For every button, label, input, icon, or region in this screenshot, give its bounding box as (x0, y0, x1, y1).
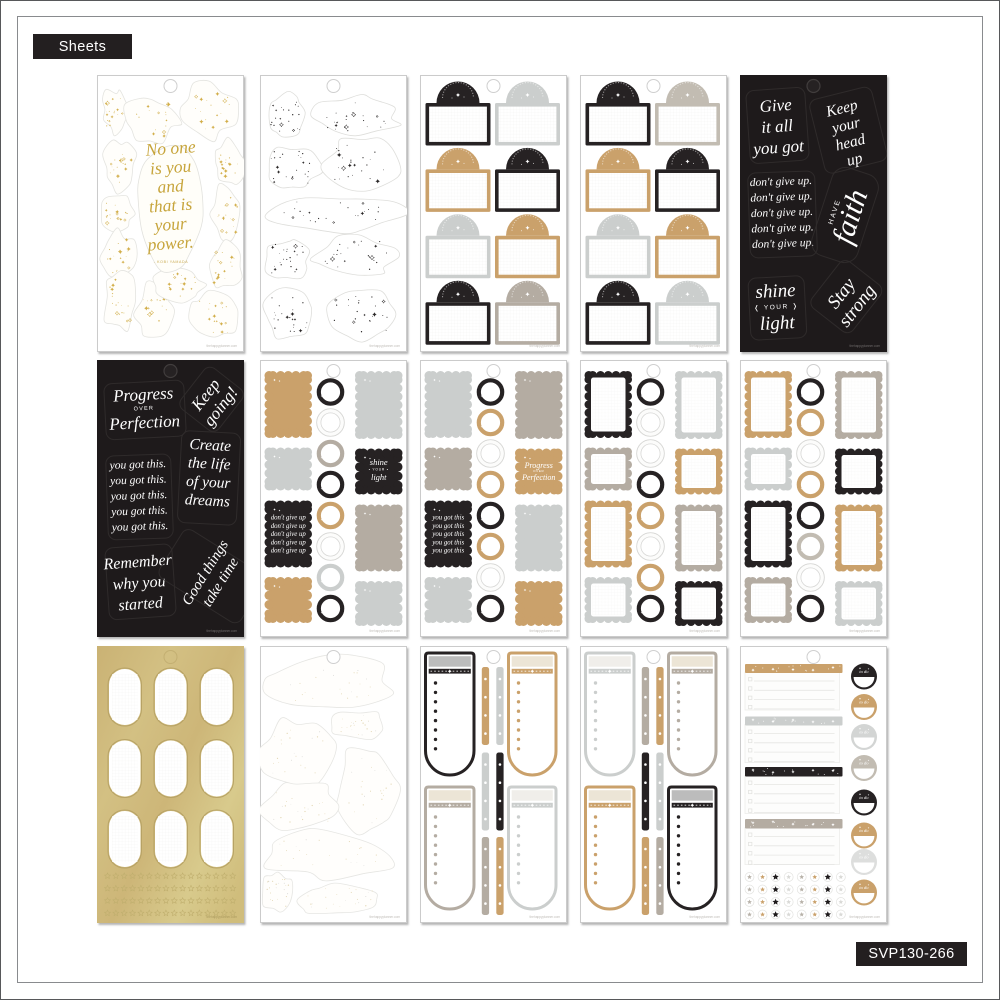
svg-text:don't give up: don't give up (271, 523, 307, 530)
svg-text:thehappyplanner.com: thehappyplanner.com (690, 629, 721, 633)
svg-text:of your: of your (186, 473, 232, 492)
svg-text:thehappyplanner.com: thehappyplanner.com (207, 344, 238, 348)
svg-text:you got this: you got this (431, 523, 464, 530)
svg-text:thehappyplanner.com: thehappyplanner.com (370, 915, 401, 919)
svg-text:thehappyplanner.com: thehappyplanner.com (850, 344, 881, 348)
svg-text:started: started (118, 594, 165, 614)
svg-text:shine: shine (370, 457, 388, 467)
svg-text:power.: power. (145, 231, 194, 254)
svg-text:to do: to do (859, 828, 869, 833)
svg-text:to do: to do (859, 700, 869, 705)
svg-text:thehappyplanner.com: thehappyplanner.com (530, 344, 561, 348)
svg-text:you got this: you got this (431, 531, 464, 538)
svg-text:don't give up.: don't give up. (752, 237, 815, 251)
svg-text:thehappyplanner.com: thehappyplanner.com (530, 629, 561, 633)
svg-text:you got this.: you got this. (108, 458, 166, 472)
svg-text:to do: to do (859, 761, 869, 766)
svg-text:don't give up: don't give up (271, 548, 307, 555)
svg-text:don't give up.: don't give up. (751, 206, 814, 220)
svg-text:you got this.: you got this. (110, 489, 168, 503)
svg-text:to do: to do (859, 730, 869, 735)
svg-text:Perfection: Perfection (108, 411, 181, 434)
svg-text:to do: to do (859, 795, 869, 800)
svg-text:don't give up.: don't give up. (750, 175, 813, 189)
svg-text:thehappyplanner.com: thehappyplanner.com (530, 915, 561, 919)
svg-text:thehappyplanner.com: thehappyplanner.com (690, 915, 721, 919)
svg-text:• YOUR •: • YOUR • (369, 468, 389, 472)
svg-text:Progress: Progress (112, 383, 174, 405)
svg-text:Create: Create (189, 436, 232, 455)
svg-text:you got: you got (751, 136, 806, 159)
svg-text:to do: to do (859, 855, 869, 860)
svg-text:to do: to do (859, 669, 869, 674)
svg-text:thehappyplanner.com: thehappyplanner.com (370, 344, 401, 348)
svg-text:light: light (371, 472, 387, 482)
svg-text:don't give up.: don't give up. (751, 221, 814, 235)
svg-text:Perfection: Perfection (521, 473, 555, 482)
svg-text:thehappyplanner.com: thehappyplanner.com (850, 629, 881, 633)
svg-text:thehappyplanner.com: thehappyplanner.com (850, 915, 881, 919)
svg-text:you got this.: you got this. (110, 504, 168, 518)
svg-text:you got this: you got this (431, 548, 464, 555)
svg-text:don't give up: don't give up (271, 539, 307, 546)
svg-text:you got this.: you got this. (109, 474, 167, 488)
svg-text:thehappyplanner.com: thehappyplanner.com (690, 344, 721, 348)
svg-text:you got this: you got this (431, 539, 464, 546)
svg-text:you got this: you got this (431, 515, 464, 522)
svg-text:the life: the life (188, 454, 232, 473)
svg-text:- KOBI YAMADA: - KOBI YAMADA (154, 260, 188, 264)
svg-text:thehappyplanner.com: thehappyplanner.com (370, 629, 401, 633)
svg-text:to do: to do (859, 885, 869, 890)
svg-text:dreams: dreams (184, 491, 230, 510)
svg-text:shine: shine (755, 280, 796, 303)
svg-text:thehappyplanner.com: thehappyplanner.com (207, 629, 238, 633)
svg-text:don't give up: don't give up (271, 531, 307, 538)
svg-text:OVER: OVER (134, 405, 155, 412)
svg-text:light: light (759, 312, 796, 335)
svg-text:it all: it all (761, 116, 794, 137)
svg-text:Give: Give (759, 95, 793, 116)
svg-text:you got this.: you got this. (111, 520, 169, 534)
svg-text:thehappyplanner.com: thehappyplanner.com (207, 915, 238, 919)
svg-text:don't give up: don't give up (271, 515, 307, 522)
svg-text:don't give up.: don't give up. (750, 190, 813, 204)
